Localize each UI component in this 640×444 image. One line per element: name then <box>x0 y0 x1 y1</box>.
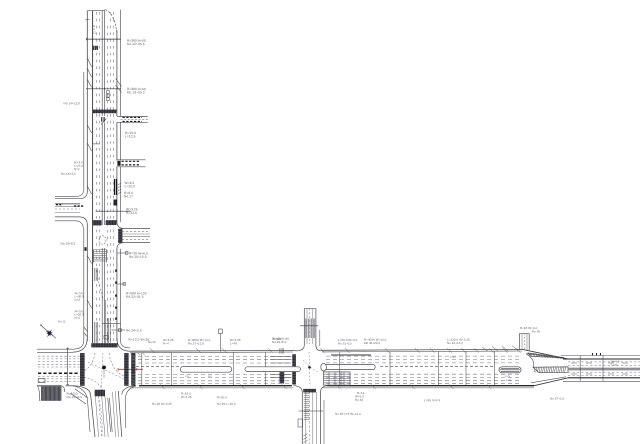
svg-text:L=85.0 N=3: L=85.0 N=3 <box>424 398 440 402</box>
svg-text:L=45: L=45 <box>230 341 237 345</box>
svg-text:R=600: R=600 <box>273 337 282 341</box>
svg-text:N=4: N=4 <box>163 341 169 345</box>
svg-text:3.25: 3.25 <box>505 375 511 378</box>
svg-text:No.14+12.0: No.14+12.0 <box>63 101 80 105</box>
svg-text:KA 22+31.5: KA 22+31.5 <box>126 295 144 299</box>
svg-text:No.34+15.2: No.34+15.2 <box>447 341 463 345</box>
svg-text:3.25: 3.25 <box>506 379 512 382</box>
svg-text:No.37+2.0: No.37+2.0 <box>550 397 565 401</box>
svg-text:No.25: No.25 <box>148 340 156 344</box>
svg-text:No.36: No.36 <box>532 329 541 333</box>
svg-text:N=2: N=2 <box>74 316 80 320</box>
svg-text:No.16+3.5: No.16+3.5 <box>61 172 76 176</box>
svg-text:No.32: No.32 <box>355 398 364 402</box>
svg-text:No.33+4.5 W=14.0: No.33+4.5 W=14.0 <box>335 412 361 416</box>
svg-text:No.20+15.0: No.20+15.0 <box>129 255 147 259</box>
svg-text:1200: 1200 <box>450 356 456 359</box>
svg-text:N=2: N=2 <box>74 167 80 171</box>
svg-text:3.0: 3.0 <box>208 375 212 378</box>
svg-text:KE 13+05.2: KE 13+05.2 <box>127 90 145 94</box>
svg-text:L=12.5: L=12.5 <box>125 134 136 138</box>
svg-text:No.24+2.5: No.24+2.5 <box>126 328 142 332</box>
svg-text:No.22: No.22 <box>58 319 66 323</box>
svg-text:R=12.0: R=12.0 <box>126 211 137 215</box>
svg-text:12: 12 <box>93 30 97 34</box>
svg-text:No.26+0.5: No.26+0.5 <box>66 395 82 399</box>
svg-text:L=40: L=40 <box>611 363 618 367</box>
svg-text:No.19+8.2: No.19+8.2 <box>60 242 75 246</box>
svg-text:R=20.0: R=20.0 <box>217 395 227 399</box>
svg-text:No.31+10: No.31+10 <box>338 341 352 345</box>
svg-text:No.17: No.17 <box>124 194 133 198</box>
svg-text:No.28 W=3.25: No.28 W=3.25 <box>152 402 172 406</box>
svg-text:No.29 L=25.0: No.29 L=25.0 <box>217 402 236 406</box>
svg-text:KE 32+20.5: KE 32+20.5 <box>364 341 381 345</box>
svg-text:KA 12+45.6: KA 12+45.6 <box>127 42 145 46</box>
svg-text:N=3: N=3 <box>74 298 80 302</box>
svg-text:W=4.25: W=4.25 <box>181 395 192 399</box>
svg-text:2.5: 2.5 <box>185 375 189 378</box>
svg-text:L=20.0: L=20.0 <box>124 184 135 188</box>
svg-text:No.27+12.5: No.27+12.5 <box>188 341 204 345</box>
svg-text:R=12.0 W=20: R=12.0 W=20 <box>128 338 149 342</box>
